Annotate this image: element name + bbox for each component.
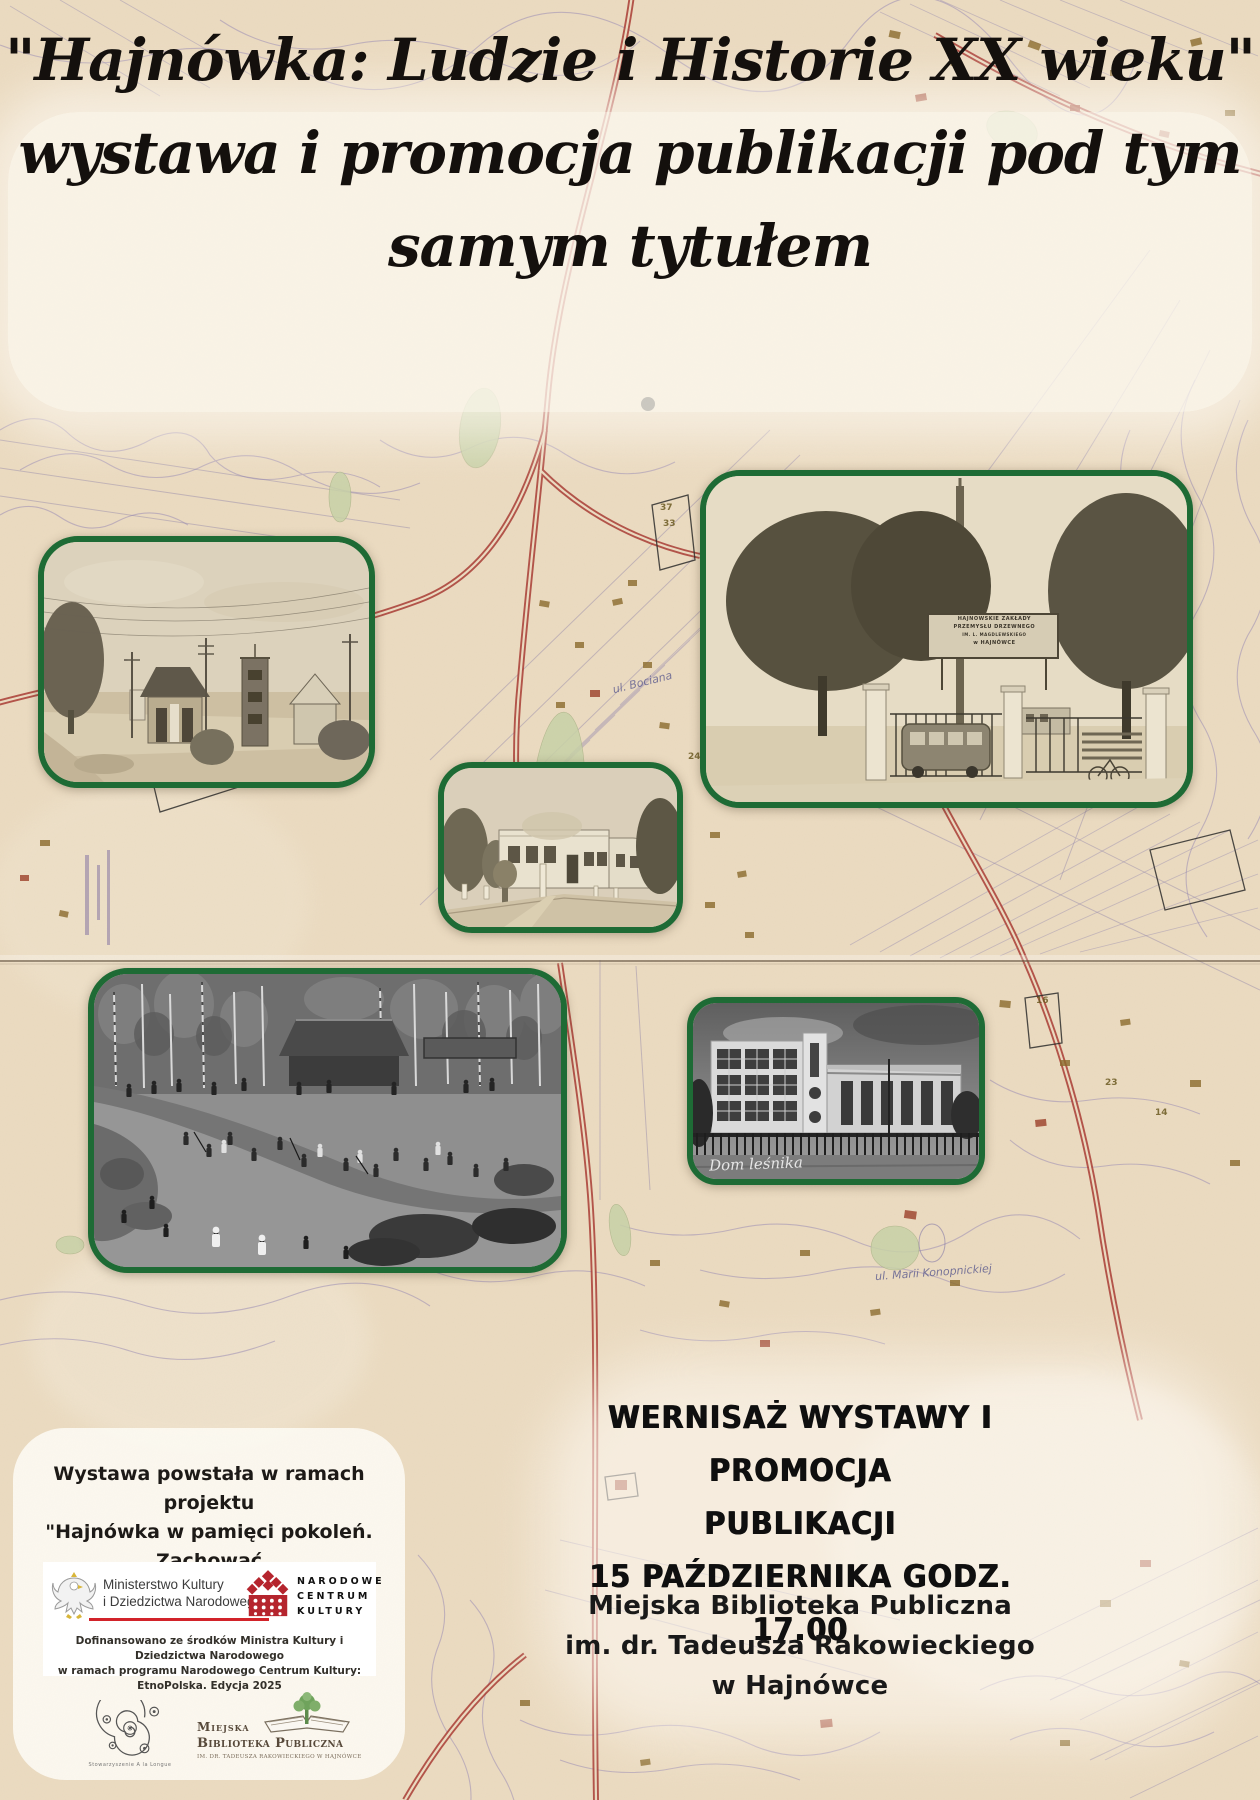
project-info-card: Wystawa powstała w ramach projektu "Hajn… — [13, 1428, 405, 1780]
gate-sign-line: PRZEMYSŁU DRZEWNEGO — [928, 623, 1060, 631]
project-line-1: Wystawa powstała w ramach projektu — [13, 1460, 405, 1518]
venue-line-3: w Hajnówce — [545, 1666, 1055, 1706]
photo-crossroads-art — [44, 542, 369, 782]
venue-line-1: Miejska Biblioteka Publiczna — [545, 1586, 1055, 1626]
gate-sign-line: IM. L. MAGDLEWSKIEGO — [928, 631, 1060, 639]
photo-crossroads-fire-tower — [38, 536, 375, 788]
nck-crown-icon — [243, 1568, 293, 1620]
event-heading-line-1: WERNISAŻ WYSTAWY I PROMOCJA — [572, 1392, 1028, 1498]
photo-factory-gate: HAJNOWSKIE ZAKŁADY PRZEMYSŁU DRZEWNEGO I… — [700, 470, 1193, 808]
photo-white-building-art — [444, 768, 677, 927]
title-line-2: wystawa i promocja publikacji pod tym — [0, 107, 1260, 200]
photo-handwritten-caption: Dom leśnika — [709, 1153, 803, 1174]
parcel-number: 24 — [688, 752, 701, 762]
venue-line-2: im. dr. Tadeusza Rakowieckiego — [545, 1626, 1055, 1666]
library-line-1: Miejska — [197, 1720, 250, 1734]
photo-dom-lesnika-art — [693, 1003, 979, 1179]
gate-sign-line: w HAJNÓWCE — [928, 639, 1060, 647]
gate-sign-line: HAJNOWSKIE ZAKŁADY — [928, 615, 1060, 623]
parcel-number: 33 — [663, 519, 676, 529]
nck-line-1: NARODOWE — [297, 1574, 385, 1589]
title-line-1: "Hajnówka: Ludzie i Historie XX wieku" — [0, 14, 1260, 107]
funders-logo-strip: Ministerstwo Kultury i Dziedzictwa Narod… — [43, 1562, 376, 1676]
association-caption: Stowarzyszenie A la Longue — [75, 1762, 185, 1768]
parcel-number: 16 — [1036, 996, 1049, 1006]
parcel-number: 14 — [1155, 1108, 1168, 1118]
nck-line-3: KULTURY — [297, 1604, 385, 1619]
library-logo: Miejska Biblioteka Publiczna IM. DR. TAD… — [195, 1704, 365, 1768]
association-logo: Stowarzyszenie A la Longue — [75, 1700, 185, 1768]
photo-white-building — [438, 762, 683, 933]
ministry-eagle-icon — [51, 1570, 97, 1620]
library-line-3: IM. DR. TADEUSZA RAKOWIECKIEGO W HAJNÓWC… — [197, 1754, 362, 1760]
ministry-red-underline — [89, 1618, 269, 1621]
funding-line-1: Dofinansowano ze środków Ministra Kultur… — [43, 1634, 376, 1664]
funding-line-2: w ramach programu Narodowego Centrum Kul… — [43, 1664, 376, 1694]
ministry-logo-text: Ministerstwo Kultury i Dziedzictwa Narod… — [103, 1576, 262, 1610]
open-book-tree-icon — [255, 1692, 359, 1740]
library-line-2: Biblioteka Publiczna — [197, 1736, 343, 1751]
title-line-3: samym tytułem — [0, 200, 1260, 293]
funding-note: Dofinansowano ze środków Ministra Kultur… — [43, 1634, 376, 1694]
nck-logo-text: NARODOWE CENTRUM KULTURY — [297, 1574, 385, 1619]
photo-dom-lesnika: Dom leśnika — [687, 997, 985, 1185]
photo-community-digging — [88, 968, 567, 1273]
poster-title: "Hajnówka: Ludzie i Historie XX wieku" w… — [0, 14, 1260, 293]
exhibition-poster: ul. Marii Konopnickiej ul. Bociana 16 23… — [0, 0, 1260, 1800]
ministry-line-1: Ministerstwo Kultury — [103, 1576, 262, 1593]
event-venue: Miejska Biblioteka Publiczna im. dr. Tad… — [545, 1586, 1055, 1706]
spiral-orbit-icon — [84, 1700, 176, 1758]
event-heading-line-2: PUBLIKACJI — [572, 1498, 1028, 1551]
parcel-number: 37 — [660, 503, 673, 513]
ministry-line-2: i Dziedzictwa Narodowego — [103, 1593, 262, 1610]
factory-gate-sign: HAJNOWSKIE ZAKŁADY PRZEMYSŁU DRZEWNEGO I… — [928, 615, 1060, 647]
nck-line-2: CENTRUM — [297, 1589, 385, 1604]
photo-community-digging-art — [94, 974, 561, 1267]
parcel-number: 23 — [1105, 1078, 1118, 1088]
